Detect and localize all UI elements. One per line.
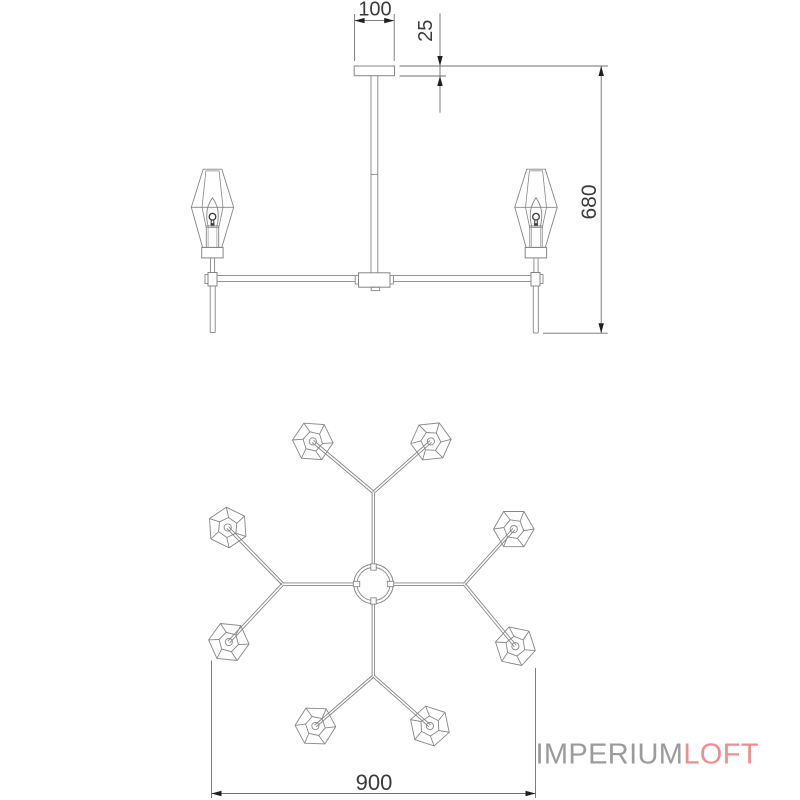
svg-text:IMPERIUMLOFT: IMPERIUMLOFT <box>536 739 759 771</box>
svg-text:680: 680 <box>578 184 601 219</box>
svg-text:900: 900 <box>356 770 393 795</box>
svg-text:100: 100 <box>358 0 391 21</box>
svg-text:25: 25 <box>415 20 437 42</box>
